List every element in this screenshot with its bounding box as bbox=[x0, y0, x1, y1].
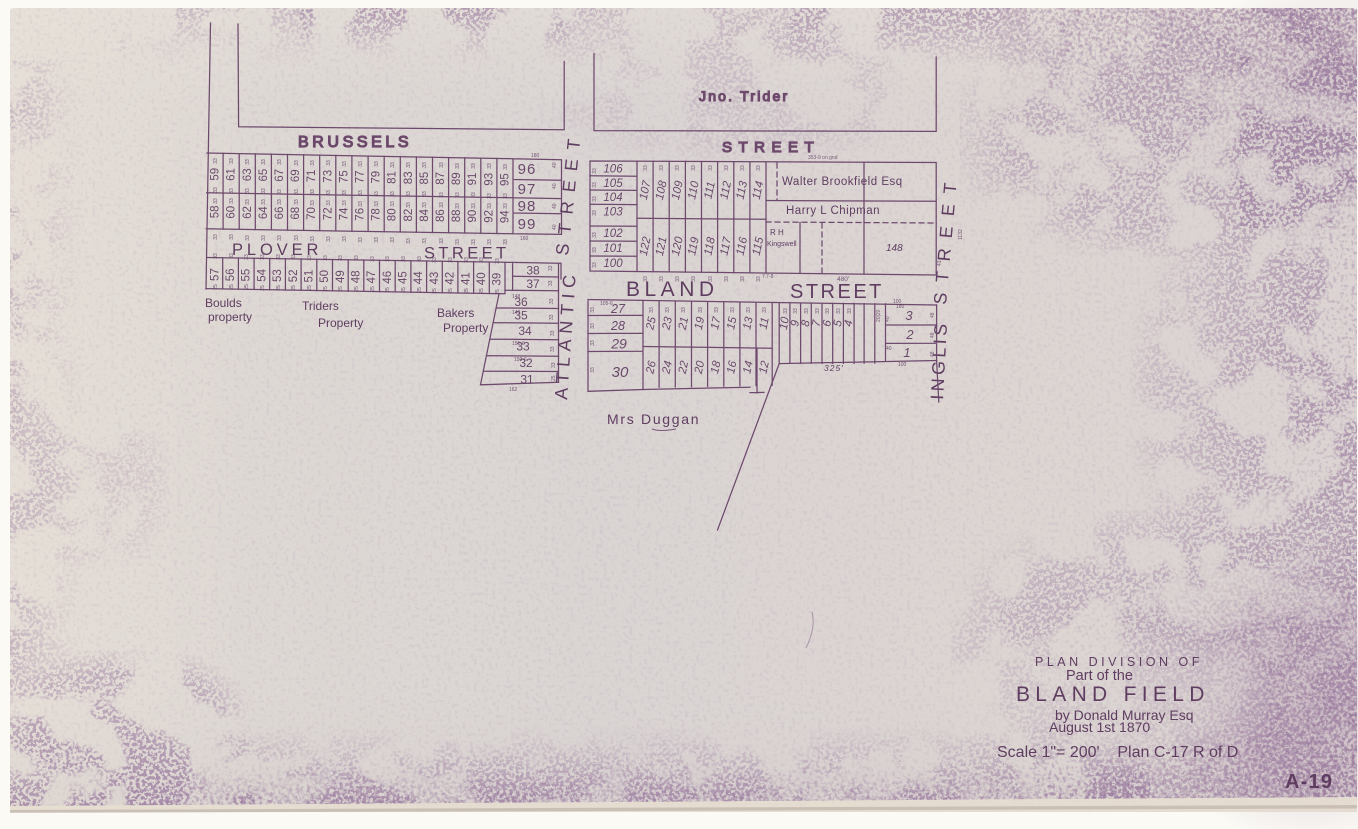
svg-text:33: 33 bbox=[783, 308, 789, 314]
svg-text:33: 33 bbox=[354, 255, 360, 261]
svg-text:94: 94 bbox=[499, 210, 511, 223]
svg-text:33: 33 bbox=[487, 203, 493, 209]
svg-text:33: 33 bbox=[374, 201, 380, 207]
svg-text:33: 33 bbox=[310, 160, 316, 166]
svg-text:41: 41 bbox=[937, 260, 943, 266]
svg-text:104: 104 bbox=[603, 192, 622, 204]
svg-text:33: 33 bbox=[390, 201, 396, 207]
svg-text:33: 33 bbox=[592, 232, 598, 238]
svg-text:95: 95 bbox=[499, 173, 511, 186]
svg-text:33: 33 bbox=[746, 307, 752, 313]
svg-text:106: 106 bbox=[603, 164, 623, 176]
svg-text:33: 33 bbox=[675, 165, 681, 171]
svg-text:33: 33 bbox=[659, 165, 665, 171]
svg-text:33: 33 bbox=[277, 189, 283, 195]
svg-text:33: 33 bbox=[310, 189, 316, 195]
svg-text:33: 33 bbox=[724, 165, 730, 171]
svg-text:R H: R H bbox=[770, 228, 784, 237]
svg-text:33: 33 bbox=[448, 257, 454, 263]
svg-text:STREET: STREET bbox=[722, 139, 820, 156]
svg-text:43: 43 bbox=[429, 272, 441, 285]
svg-text:33: 33 bbox=[439, 202, 445, 208]
svg-text:101: 101 bbox=[603, 243, 622, 255]
svg-text:180: 180 bbox=[531, 153, 540, 159]
svg-text:96: 96 bbox=[518, 161, 537, 178]
svg-text:33: 33 bbox=[825, 308, 831, 314]
svg-text:25: 25 bbox=[432, 288, 438, 294]
svg-text:3: 3 bbox=[905, 308, 913, 323]
svg-text:33: 33 bbox=[358, 201, 364, 207]
svg-text:34: 34 bbox=[518, 324, 532, 338]
svg-text:33: 33 bbox=[342, 236, 348, 242]
svg-text:25: 25 bbox=[479, 288, 485, 294]
svg-text:25: 25 bbox=[244, 284, 250, 290]
svg-text:29: 29 bbox=[610, 336, 627, 352]
svg-text:33: 33 bbox=[708, 165, 714, 171]
svg-text:33: 33 bbox=[740, 276, 746, 282]
svg-text:33: 33 bbox=[793, 308, 799, 314]
svg-text:33: 33 bbox=[698, 307, 704, 313]
svg-text:30: 30 bbox=[612, 364, 629, 381]
svg-text:151-6: 151-6 bbox=[512, 341, 525, 347]
svg-text:BLAND: BLAND bbox=[626, 278, 719, 301]
svg-text:33: 33 bbox=[310, 200, 316, 206]
svg-text:64: 64 bbox=[258, 206, 270, 219]
svg-text:47: 47 bbox=[366, 271, 378, 284]
svg-text:25: 25 bbox=[448, 288, 454, 294]
svg-text:33: 33 bbox=[245, 199, 251, 205]
svg-text:33: 33 bbox=[503, 193, 509, 199]
svg-text:86: 86 bbox=[435, 209, 447, 222]
svg-text:79: 79 bbox=[371, 171, 383, 184]
svg-text:59: 59 bbox=[210, 168, 222, 181]
svg-text:33: 33 bbox=[229, 188, 235, 194]
svg-text:39: 39 bbox=[492, 273, 504, 286]
svg-text:105: 105 bbox=[603, 178, 623, 190]
svg-text:33: 33 bbox=[307, 255, 313, 261]
svg-text:33: 33 bbox=[294, 160, 300, 166]
svg-text:63: 63 bbox=[242, 168, 254, 181]
svg-text:25: 25 bbox=[401, 287, 407, 293]
svg-text:33: 33 bbox=[277, 159, 283, 165]
svg-text:71: 71 bbox=[306, 170, 318, 183]
svg-text:33: 33 bbox=[245, 235, 251, 241]
svg-text:40: 40 bbox=[885, 316, 891, 322]
svg-text:33: 33 bbox=[432, 257, 438, 263]
svg-text:48: 48 bbox=[351, 271, 363, 284]
svg-text:33: 33 bbox=[213, 198, 219, 204]
svg-text:33: 33 bbox=[245, 188, 251, 194]
svg-text:33: 33 bbox=[260, 254, 266, 260]
svg-text:33: 33 bbox=[592, 168, 598, 174]
svg-text:33: 33 bbox=[406, 238, 412, 244]
svg-text:Property: Property bbox=[443, 321, 488, 335]
svg-text:2: 2 bbox=[905, 327, 914, 342]
svg-text:100: 100 bbox=[898, 362, 907, 368]
svg-text:88: 88 bbox=[451, 210, 463, 223]
svg-text:33: 33 bbox=[390, 162, 396, 168]
svg-text:40: 40 bbox=[552, 183, 558, 189]
svg-text:33: 33 bbox=[762, 307, 768, 313]
svg-text:85: 85 bbox=[419, 172, 431, 185]
svg-text:105-6: 105-6 bbox=[600, 301, 613, 307]
svg-text:33: 33 bbox=[342, 190, 348, 196]
svg-text:Property: Property bbox=[318, 316, 363, 330]
svg-text:25: 25 bbox=[213, 284, 219, 290]
svg-text:BLAND FIELD: BLAND FIELD bbox=[1016, 683, 1210, 706]
svg-text:33: 33 bbox=[406, 202, 412, 208]
svg-text:33: 33 bbox=[503, 203, 509, 209]
svg-text:33: 33 bbox=[213, 253, 219, 259]
svg-text:20|20: 20|20 bbox=[876, 309, 882, 322]
svg-text:25: 25 bbox=[291, 285, 297, 291]
svg-text:25: 25 bbox=[495, 289, 501, 295]
svg-text:33: 33 bbox=[229, 234, 235, 240]
svg-text:42: 42 bbox=[445, 272, 457, 285]
svg-text:33: 33 bbox=[464, 257, 470, 263]
svg-text:33: 33 bbox=[549, 314, 555, 320]
svg-text:148: 148 bbox=[886, 243, 903, 254]
svg-text:33: 33 bbox=[326, 236, 332, 242]
svg-text:48: 48 bbox=[930, 332, 936, 338]
svg-text:33: 33 bbox=[455, 163, 461, 169]
svg-text:33: 33 bbox=[244, 254, 250, 260]
svg-text:33: 33 bbox=[590, 307, 596, 313]
svg-text:353-9 on gnd: 353-9 on gnd bbox=[808, 155, 838, 161]
svg-text:33: 33 bbox=[229, 198, 235, 204]
svg-text:72: 72 bbox=[322, 207, 334, 220]
svg-text:33: 33 bbox=[374, 237, 380, 243]
svg-text:33: 33 bbox=[756, 165, 762, 171]
svg-text:33: 33 bbox=[213, 234, 219, 240]
svg-text:70: 70 bbox=[306, 207, 318, 220]
svg-text:33: 33 bbox=[261, 235, 267, 241]
svg-text:102: 102 bbox=[603, 228, 623, 240]
svg-text:25: 25 bbox=[417, 287, 423, 293]
svg-text:33: 33 bbox=[815, 308, 821, 314]
svg-text:61: 61 bbox=[226, 168, 238, 181]
svg-text:33: 33 bbox=[326, 160, 332, 166]
svg-text:33: 33 bbox=[439, 192, 445, 198]
svg-text:28: 28 bbox=[610, 319, 625, 333]
svg-text:33: 33 bbox=[294, 235, 300, 241]
svg-text:33: 33 bbox=[479, 257, 485, 263]
svg-text:33: 33 bbox=[294, 189, 300, 195]
svg-text:33: 33 bbox=[213, 158, 219, 164]
svg-text:81: 81 bbox=[387, 171, 399, 184]
svg-text:33: 33 bbox=[245, 159, 251, 165]
svg-text:33: 33 bbox=[385, 256, 391, 262]
svg-text:33: 33 bbox=[229, 158, 235, 164]
svg-text:31: 31 bbox=[520, 373, 534, 387]
svg-text:83: 83 bbox=[403, 171, 415, 184]
svg-text:33: 33 bbox=[390, 191, 396, 197]
svg-text:51: 51 bbox=[303, 270, 315, 283]
svg-text:33: 33 bbox=[740, 165, 746, 171]
svg-text:147: 147 bbox=[512, 310, 521, 316]
svg-text:58: 58 bbox=[210, 206, 222, 219]
svg-text:90: 90 bbox=[467, 210, 479, 223]
svg-text:33: 33 bbox=[277, 199, 283, 205]
svg-text:33: 33 bbox=[592, 262, 598, 268]
svg-text:Boulds: Boulds bbox=[205, 296, 242, 310]
svg-text:33: 33 bbox=[422, 191, 428, 197]
svg-text:100: 100 bbox=[603, 258, 623, 270]
svg-text:98: 98 bbox=[518, 198, 537, 215]
svg-text:33: 33 bbox=[590, 367, 596, 373]
svg-text:68: 68 bbox=[290, 207, 302, 220]
svg-text:33: 33 bbox=[294, 199, 300, 205]
svg-text:33: 33 bbox=[422, 162, 428, 168]
svg-text:STREET: STREET bbox=[790, 281, 884, 303]
svg-text:77: 77 bbox=[355, 171, 367, 184]
svg-text:46: 46 bbox=[382, 271, 394, 284]
svg-text:Kingswell: Kingswell bbox=[767, 241, 797, 248]
svg-text:33: 33 bbox=[342, 200, 348, 206]
svg-text:52: 52 bbox=[288, 270, 300, 283]
svg-text:45: 45 bbox=[398, 271, 410, 284]
svg-text:33: 33 bbox=[229, 253, 235, 259]
svg-text:33: 33 bbox=[471, 192, 477, 198]
svg-text:33: 33 bbox=[548, 265, 554, 271]
svg-text:33: 33 bbox=[455, 192, 461, 198]
svg-text:66: 66 bbox=[274, 207, 286, 220]
svg-text:49: 49 bbox=[335, 270, 347, 283]
svg-text:25: 25 bbox=[338, 286, 344, 292]
svg-text:89: 89 bbox=[451, 172, 463, 185]
svg-text:33: 33 bbox=[730, 307, 736, 313]
svg-text:1: 1 bbox=[903, 345, 910, 360]
svg-text:33: 33 bbox=[471, 163, 477, 169]
svg-text:80: 80 bbox=[387, 208, 399, 221]
svg-text:160: 160 bbox=[520, 236, 529, 242]
svg-text:33: 33 bbox=[592, 210, 598, 216]
svg-text:33: 33 bbox=[649, 307, 655, 313]
svg-text:25: 25 bbox=[307, 285, 313, 291]
svg-text:180: 180 bbox=[896, 304, 905, 310]
svg-text:33: 33 bbox=[370, 256, 376, 262]
svg-text:Triders: Triders bbox=[302, 299, 339, 313]
svg-text:48: 48 bbox=[930, 312, 936, 318]
svg-text:33: 33 bbox=[487, 163, 493, 169]
svg-text:78: 78 bbox=[371, 208, 383, 221]
svg-text:103: 103 bbox=[603, 207, 623, 219]
svg-text:33: 33 bbox=[714, 307, 720, 313]
svg-text:33: 33 bbox=[261, 188, 267, 194]
svg-text:11: 11 bbox=[758, 316, 772, 330]
svg-text:92: 92 bbox=[483, 210, 495, 223]
svg-text:33: 33 bbox=[213, 187, 219, 193]
svg-text:33: 33 bbox=[276, 254, 282, 260]
svg-text:33: 33 bbox=[836, 308, 842, 314]
svg-text:48: 48 bbox=[930, 351, 936, 357]
svg-text:7.7-8: 7.7-8 bbox=[762, 274, 774, 280]
svg-text:162: 162 bbox=[509, 387, 518, 393]
svg-text:41: 41 bbox=[460, 272, 472, 285]
svg-text:Mrs Duggan: Mrs Duggan bbox=[607, 411, 700, 427]
svg-text:33: 33 bbox=[326, 190, 332, 196]
svg-text:August 1st 1870: August 1st 1870 bbox=[1049, 719, 1150, 735]
svg-text:33: 33 bbox=[323, 255, 329, 261]
svg-text:40: 40 bbox=[886, 346, 892, 352]
svg-text:33: 33 bbox=[422, 202, 428, 208]
svg-text:33: 33 bbox=[847, 308, 853, 314]
svg-text:33: 33 bbox=[439, 162, 445, 168]
svg-text:37: 37 bbox=[526, 277, 540, 291]
svg-text:BRUSSELS: BRUSSELS bbox=[298, 134, 412, 151]
svg-text:33: 33 bbox=[681, 307, 687, 313]
svg-text:A-19: A-19 bbox=[1285, 771, 1333, 793]
svg-text:33: 33 bbox=[643, 165, 649, 171]
svg-text:33: 33 bbox=[390, 237, 396, 243]
svg-text:33: 33 bbox=[592, 182, 598, 188]
svg-text:62: 62 bbox=[242, 206, 254, 219]
svg-text:75: 75 bbox=[338, 170, 350, 183]
svg-text:33: 33 bbox=[691, 165, 697, 171]
svg-text:150-6: 150-6 bbox=[514, 357, 527, 363]
svg-text:25: 25 bbox=[323, 286, 329, 292]
svg-text:325': 325' bbox=[824, 363, 844, 373]
svg-text:1132: 1132 bbox=[958, 229, 964, 240]
svg-text:65: 65 bbox=[258, 169, 270, 182]
svg-text:33: 33 bbox=[471, 203, 477, 209]
svg-text:33: 33 bbox=[406, 191, 412, 197]
svg-text:33: 33 bbox=[590, 323, 596, 329]
svg-text:property: property bbox=[208, 310, 252, 324]
svg-text:82: 82 bbox=[403, 209, 415, 222]
svg-text:25: 25 bbox=[260, 285, 266, 291]
svg-text:69: 69 bbox=[290, 169, 302, 182]
svg-text:33: 33 bbox=[338, 255, 344, 261]
svg-text:25: 25 bbox=[370, 286, 376, 292]
svg-text:33: 33 bbox=[326, 200, 332, 206]
svg-text:Scale 1"= 200' Plan C-17 R: Scale 1"= 200' Plan C-17 R of D bbox=[997, 744, 1238, 761]
svg-text:33: 33 bbox=[406, 162, 412, 168]
svg-text:33: 33 bbox=[804, 308, 810, 314]
svg-text:44: 44 bbox=[413, 271, 425, 284]
svg-text:54: 54 bbox=[256, 268, 268, 281]
svg-text:76: 76 bbox=[355, 208, 367, 221]
svg-text:74: 74 bbox=[338, 207, 350, 220]
svg-text:60: 60 bbox=[226, 206, 238, 219]
svg-text:99: 99 bbox=[518, 216, 537, 233]
svg-text:55: 55 bbox=[241, 269, 253, 282]
svg-text:33: 33 bbox=[374, 191, 380, 197]
svg-text:33: 33 bbox=[401, 256, 407, 262]
svg-text:Harry L Chipman: Harry L Chipman bbox=[786, 205, 880, 217]
svg-text:33: 33 bbox=[291, 254, 297, 260]
svg-text:33: 33 bbox=[549, 298, 555, 304]
svg-text:33: 33 bbox=[261, 199, 267, 205]
svg-text:33: 33 bbox=[503, 164, 509, 170]
svg-text:67: 67 bbox=[274, 169, 286, 182]
svg-text:56: 56 bbox=[225, 269, 237, 282]
svg-text:25: 25 bbox=[464, 288, 470, 294]
svg-text:33: 33 bbox=[439, 238, 445, 244]
svg-text:Bakers: Bakers bbox=[437, 306, 474, 320]
svg-text:33: 33 bbox=[342, 161, 348, 167]
svg-text:33: 33 bbox=[358, 190, 364, 196]
svg-text:33: 33 bbox=[495, 258, 501, 264]
svg-text:25: 25 bbox=[276, 285, 282, 291]
svg-text:50: 50 bbox=[319, 270, 331, 283]
svg-text:Part of the: Part of the bbox=[1066, 668, 1133, 684]
svg-text:33: 33 bbox=[374, 161, 380, 167]
svg-text:97: 97 bbox=[518, 181, 537, 198]
svg-text:33: 33 bbox=[358, 161, 364, 167]
svg-text:33: 33 bbox=[548, 280, 554, 286]
svg-text:38: 38 bbox=[526, 264, 540, 278]
svg-text:Walter Brookfield Esq: Walter Brookfield Esq bbox=[782, 176, 903, 188]
svg-text:33: 33 bbox=[358, 237, 364, 243]
svg-text:33: 33 bbox=[590, 340, 596, 346]
svg-text:73: 73 bbox=[322, 170, 334, 183]
svg-text:33: 33 bbox=[261, 159, 267, 165]
svg-text:PLAN DIVISION OF: PLAN DIVISION OF bbox=[1035, 655, 1203, 669]
svg-text:33: 33 bbox=[592, 196, 598, 202]
svg-text:33: 33 bbox=[487, 193, 493, 199]
svg-text:57: 57 bbox=[209, 268, 221, 281]
svg-text:25: 25 bbox=[385, 287, 391, 293]
svg-text:33: 33 bbox=[592, 247, 598, 253]
svg-text:33: 33 bbox=[417, 256, 423, 262]
svg-text:148: 148 bbox=[512, 294, 521, 300]
svg-text:33: 33 bbox=[455, 203, 461, 209]
svg-text:40: 40 bbox=[476, 272, 488, 285]
svg-text:33: 33 bbox=[277, 235, 283, 241]
svg-text:33: 33 bbox=[422, 238, 428, 244]
svg-text:53: 53 bbox=[272, 269, 284, 282]
svg-text:33: 33 bbox=[724, 276, 730, 282]
svg-text:91: 91 bbox=[467, 173, 479, 186]
svg-text:40: 40 bbox=[552, 162, 558, 168]
svg-text:93: 93 bbox=[483, 173, 495, 186]
svg-text:25: 25 bbox=[354, 286, 360, 292]
svg-text:87: 87 bbox=[435, 172, 447, 185]
svg-text:Jno. Trider: Jno. Trider bbox=[699, 88, 789, 104]
svg-text:33: 33 bbox=[665, 307, 671, 313]
svg-text:25: 25 bbox=[229, 284, 235, 290]
svg-text:84: 84 bbox=[419, 208, 431, 221]
